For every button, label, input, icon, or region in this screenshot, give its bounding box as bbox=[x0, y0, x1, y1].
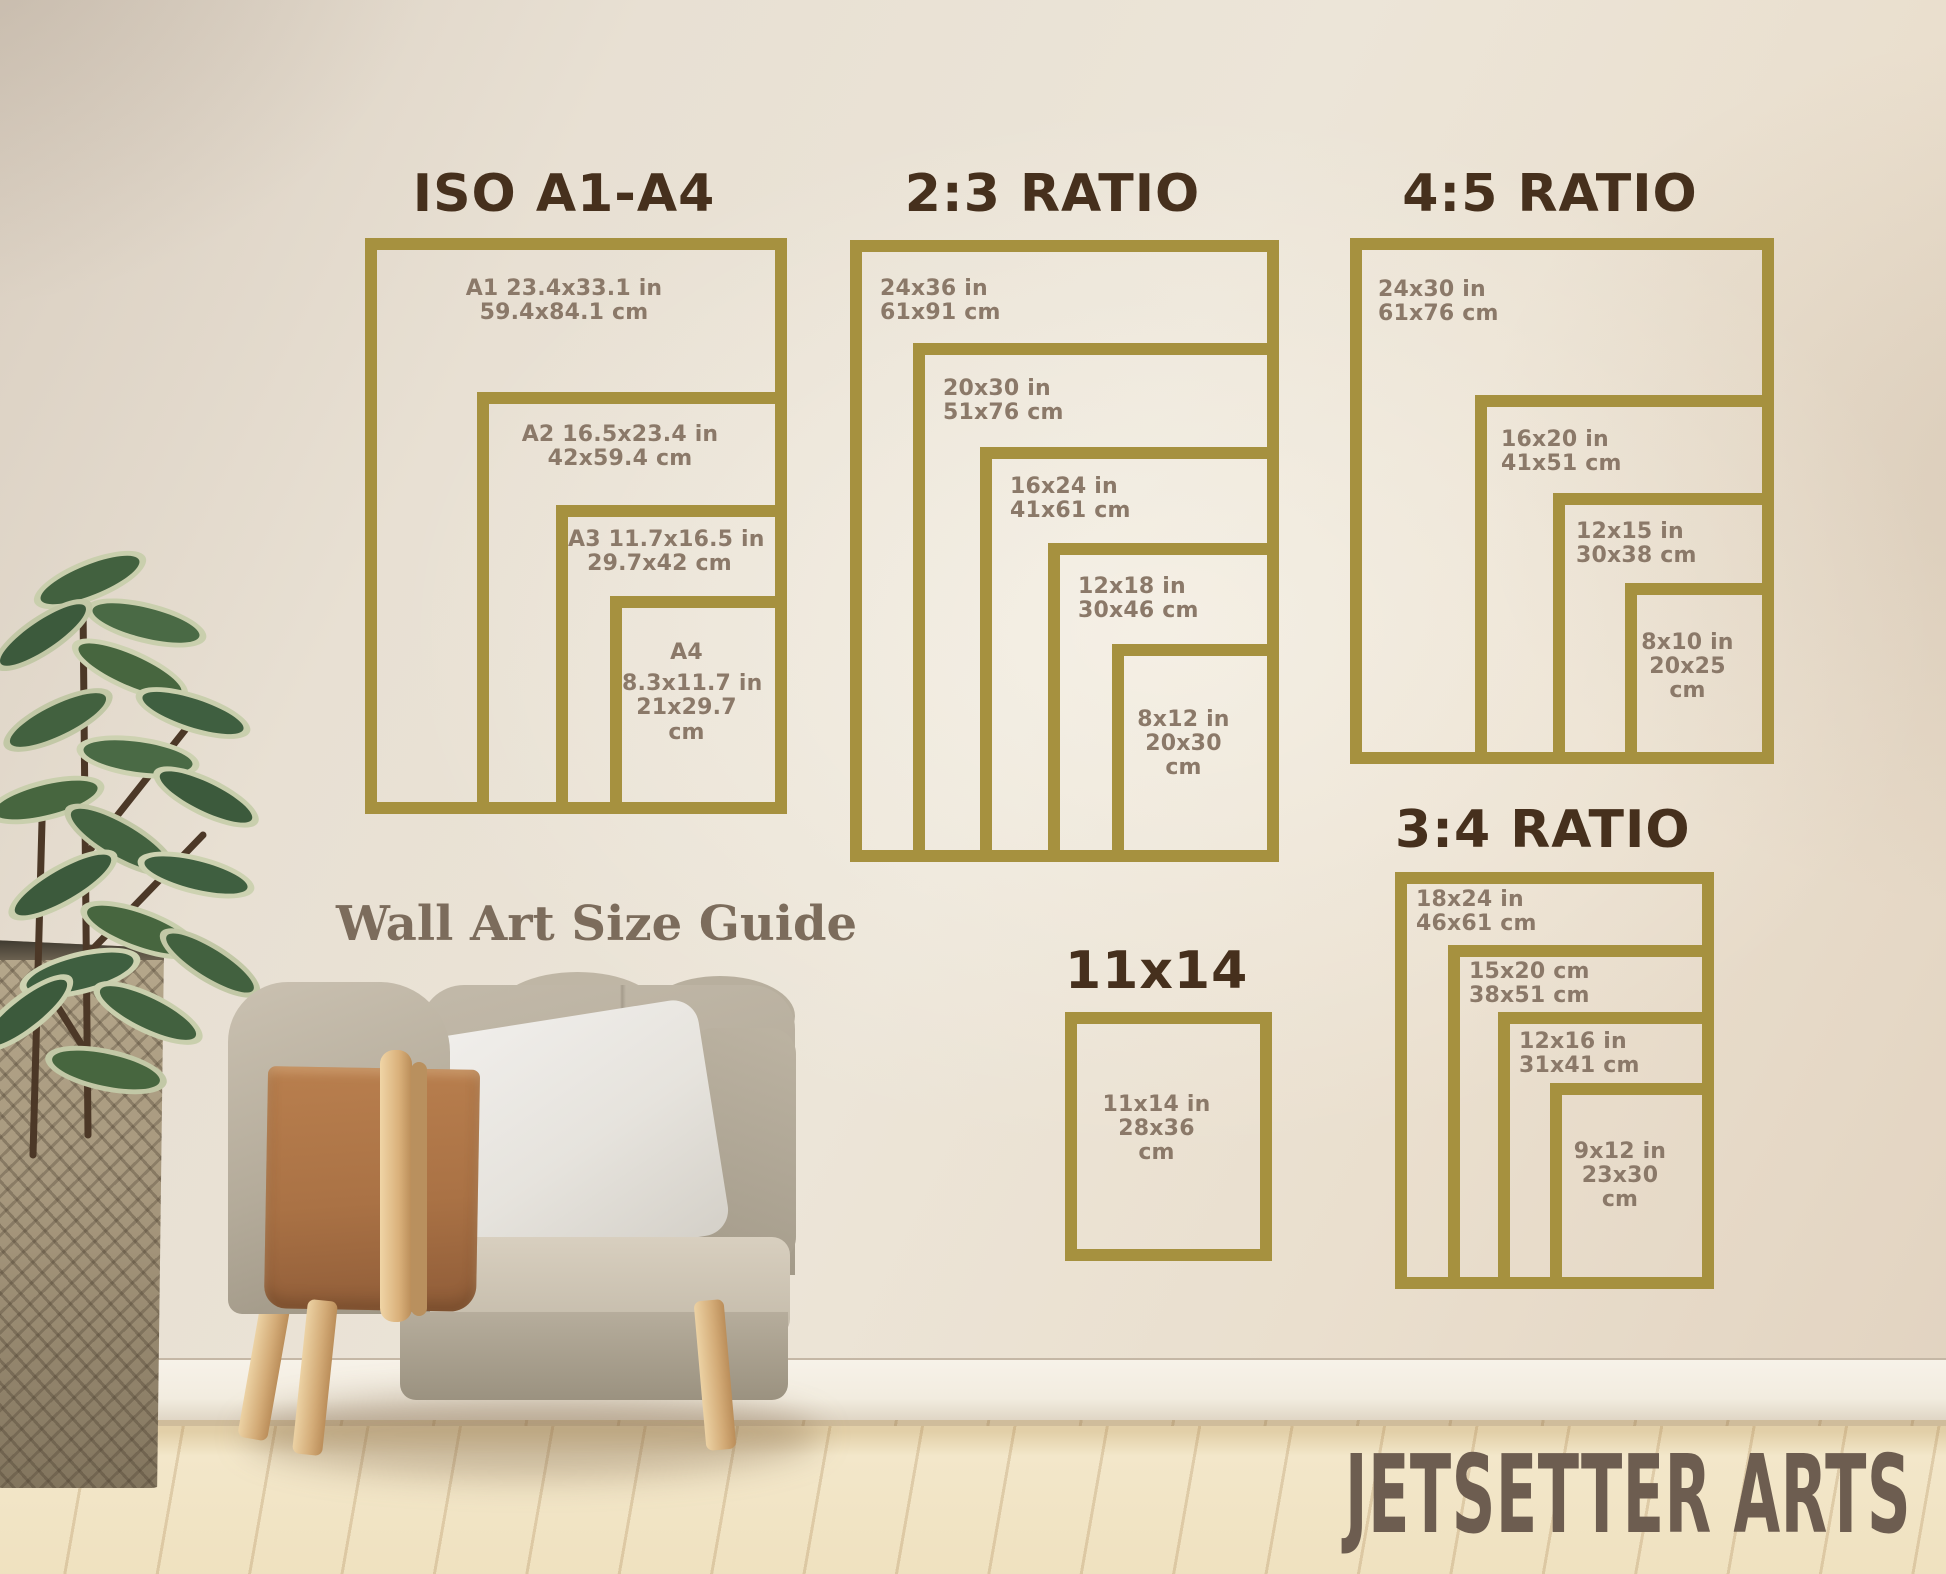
label-line: 18x24 in bbox=[1416, 888, 1537, 912]
size-label-12x15: 12x15 in 30x38 cm bbox=[1576, 520, 1697, 568]
label-line: 51x76 cm bbox=[943, 401, 1064, 425]
label-line: 23x30 bbox=[1562, 1164, 1678, 1188]
size-label-a3: A3 11.7x16.5 in 29.7x42 cm bbox=[568, 528, 751, 576]
label-line: cm bbox=[1637, 679, 1738, 703]
label-line: 16x24 in bbox=[1010, 475, 1131, 499]
size-label-a4: A4 8.3x11.7 in 21x29.7 cm bbox=[622, 641, 751, 745]
label-line: 24x36 in bbox=[880, 277, 1001, 301]
size-label-18x24: 18x24 in 46x61 cm bbox=[1416, 888, 1537, 936]
label-line: 12x18 in bbox=[1078, 575, 1199, 599]
chair-wood-post bbox=[380, 1050, 412, 1322]
brand-watermark: JETSETTER ARTS bbox=[1345, 1442, 1911, 1550]
label-line: 42x59.4 cm bbox=[489, 447, 751, 471]
label-line: 38x51 cm bbox=[1469, 984, 1590, 1008]
section-title-2-3: 2:3 RATIO bbox=[850, 168, 1255, 220]
label-line: 12x15 in bbox=[1576, 520, 1697, 544]
label-line: 46x61 cm bbox=[1416, 912, 1537, 936]
size-label-24x36: 24x36 in 61x91 cm bbox=[880, 277, 1001, 325]
chair-wood-post bbox=[411, 1062, 427, 1316]
size-label-24x30: 24x30 in 61x76 cm bbox=[1378, 278, 1499, 326]
size-label-8x10: 8x10 in 20x25 cm bbox=[1637, 631, 1738, 704]
label-line: cm bbox=[622, 721, 751, 745]
label-line: 24x30 in bbox=[1378, 278, 1499, 302]
label-line: 41x61 cm bbox=[1010, 499, 1131, 523]
label-line: A1 23.4x33.1 in bbox=[377, 277, 751, 301]
label-line: 9x12 in bbox=[1562, 1140, 1678, 1164]
guide-title: Wall Art Size Guide bbox=[336, 896, 857, 952]
label-line: 16x20 in bbox=[1501, 428, 1622, 452]
size-label-16x24: 16x24 in 41x61 cm bbox=[1010, 475, 1131, 523]
size-label-12x18: 12x18 in 30x46 cm bbox=[1078, 575, 1199, 623]
label-line: 59.4x84.1 cm bbox=[377, 301, 751, 325]
label-line: 11x14 in bbox=[1077, 1093, 1236, 1117]
label-line: 8x10 in bbox=[1637, 631, 1738, 655]
section-title-iso: ISO A1-A4 bbox=[365, 168, 763, 220]
size-label-15x20: 15x20 cm 38x51 cm bbox=[1469, 960, 1590, 1008]
label-line: A4 bbox=[622, 641, 751, 665]
label-line: 20x30 in bbox=[943, 377, 1064, 401]
label-line: 12x16 in bbox=[1519, 1030, 1640, 1054]
label-line: 61x76 cm bbox=[1378, 302, 1499, 326]
size-label-12x16: 12x16 in 31x41 cm bbox=[1519, 1030, 1640, 1078]
section-title-11x14: 11x14 bbox=[1065, 945, 1248, 997]
label-line: 15x20 cm bbox=[1469, 960, 1590, 984]
section-title-4-5: 4:5 RATIO bbox=[1350, 168, 1750, 220]
label-line: 31x41 cm bbox=[1519, 1054, 1640, 1078]
label-line: 8.3x11.7 in bbox=[622, 672, 751, 696]
label-line: cm bbox=[1124, 756, 1243, 780]
size-label-20x30: 20x30 in 51x76 cm bbox=[943, 377, 1064, 425]
chair-leather-panel bbox=[264, 1066, 480, 1312]
section-title-3-4: 3:4 RATIO bbox=[1395, 804, 1690, 856]
size-label-9x12: 9x12 in 23x30 cm bbox=[1562, 1140, 1678, 1213]
label-line: 61x91 cm bbox=[880, 301, 1001, 325]
label-line: 21x29.7 bbox=[622, 696, 751, 720]
room-scene: ISO A1-A4 A1 23.4x33.1 in 59.4x84.1 cm A… bbox=[0, 0, 1946, 1574]
label-line: 28x36 bbox=[1077, 1117, 1236, 1141]
label-line: cm bbox=[1562, 1188, 1678, 1212]
label-line: 30x46 cm bbox=[1078, 599, 1199, 623]
label-line: 29.7x42 cm bbox=[568, 552, 751, 576]
size-label-8x12: 8x12 in 20x30 cm bbox=[1124, 708, 1243, 781]
label-line: 20x30 bbox=[1124, 732, 1243, 756]
label-line: 41x51 cm bbox=[1501, 452, 1622, 476]
label-line: 20x25 bbox=[1637, 655, 1738, 679]
size-label-a2: A2 16.5x23.4 in 42x59.4 cm bbox=[489, 423, 751, 471]
size-label-a1: A1 23.4x33.1 in 59.4x84.1 cm bbox=[377, 277, 751, 325]
label-line: 8x12 in bbox=[1124, 708, 1243, 732]
size-label-11x14: 11x14 in 28x36 cm bbox=[1077, 1093, 1236, 1166]
label-line: 30x38 cm bbox=[1576, 544, 1697, 568]
label-line: A2 16.5x23.4 in bbox=[489, 423, 751, 447]
label-line: cm bbox=[1077, 1141, 1236, 1165]
size-label-16x20: 16x20 in 41x51 cm bbox=[1501, 428, 1622, 476]
label-line: A3 11.7x16.5 in bbox=[568, 528, 751, 552]
